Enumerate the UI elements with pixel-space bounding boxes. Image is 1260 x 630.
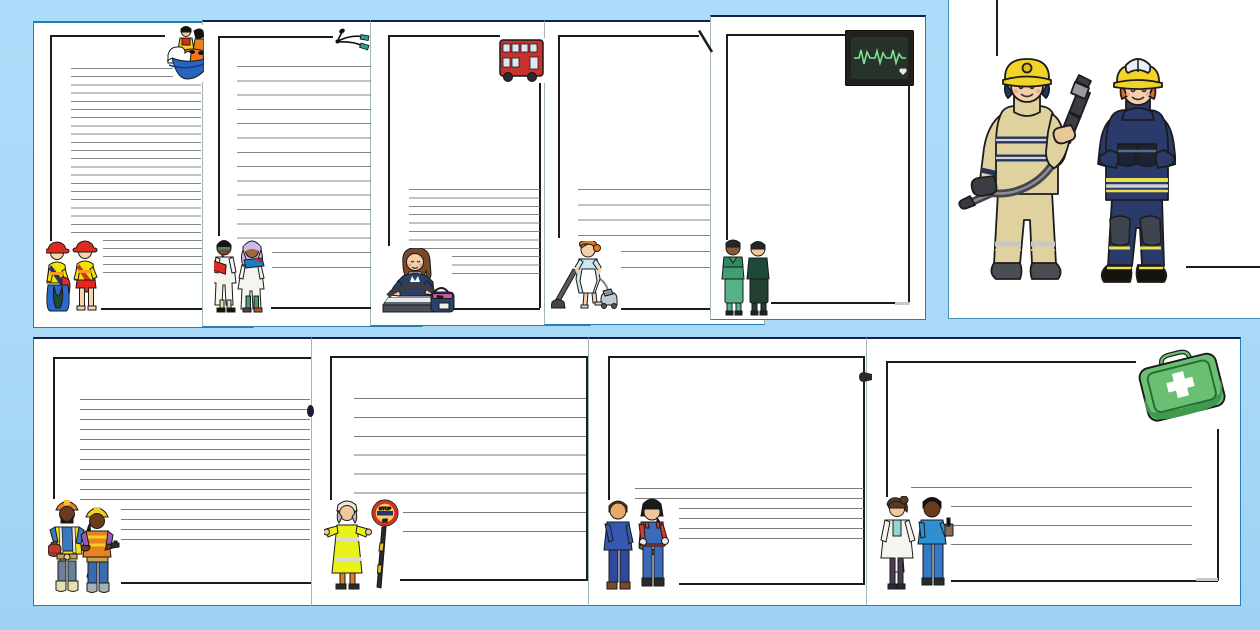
svg-text:Bus: Bus xyxy=(437,295,443,299)
svg-text:STOP: STOP xyxy=(379,506,391,511)
svg-text:##: ## xyxy=(382,518,388,523)
